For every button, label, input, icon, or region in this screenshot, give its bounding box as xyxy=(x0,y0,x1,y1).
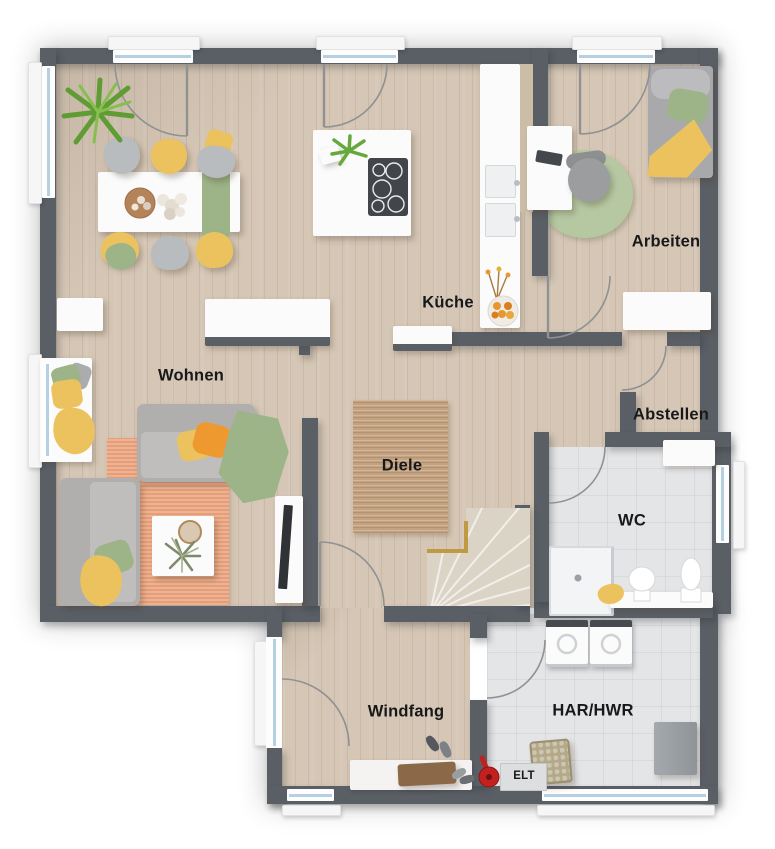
room-label-diele: Diele xyxy=(382,457,422,476)
wall-windfang-har-lower xyxy=(470,700,487,786)
office-sideboard xyxy=(623,292,711,330)
room-label-wc: WC xyxy=(618,512,646,531)
shower xyxy=(549,546,614,616)
halfwall-sideboard-1 xyxy=(205,299,330,346)
wall-abstellen-top-right xyxy=(667,332,700,346)
dining-sideboard xyxy=(57,298,103,331)
sill-top-2 xyxy=(316,36,405,50)
floor-plan: Wohnen Küche Arbeiten Abstellen Diele WC… xyxy=(0,0,775,849)
sill-top-1 xyxy=(108,36,200,50)
window-windfang-bottom xyxy=(287,789,334,801)
window-terrace-office xyxy=(577,50,655,63)
window-har-bottom xyxy=(542,789,708,801)
dryer xyxy=(590,620,632,667)
window-left-dining xyxy=(42,66,55,198)
shoe-bench xyxy=(397,761,456,786)
window-terrace-kitchen xyxy=(321,50,398,63)
kitchen-sink-2 xyxy=(485,203,516,237)
wall-wc-left xyxy=(534,432,549,602)
room-label-kueche: Küche xyxy=(422,294,473,313)
room-label-abstellen: Abstellen xyxy=(633,406,709,425)
halfwall-sideboard-2 xyxy=(393,326,452,351)
sill-bottom-2 xyxy=(537,805,715,816)
office-chair xyxy=(568,158,610,202)
sill-wc-right xyxy=(733,461,745,549)
water-heater xyxy=(654,722,697,775)
table-runner xyxy=(202,172,230,236)
wall-diele-top xyxy=(450,332,622,346)
dining-chair-5 xyxy=(151,236,189,270)
bay-pillow-yellow xyxy=(50,378,84,410)
wall-under-stairs xyxy=(384,606,530,622)
wc-vanity xyxy=(610,592,713,608)
desk xyxy=(527,126,572,210)
room-label-arbeiten: Arbeiten xyxy=(632,233,701,252)
coffee-table xyxy=(152,516,214,576)
room-label-elt: ELT xyxy=(513,770,534,782)
sill-bottom-1 xyxy=(282,805,341,816)
front-door xyxy=(266,637,282,748)
wall-right-lower xyxy=(700,614,718,804)
room-label-windfang: Windfang xyxy=(368,703,445,722)
wall-wohnen-diele xyxy=(302,418,318,606)
room-label-har: HAR/HWR xyxy=(552,702,633,721)
wall-stairs-right xyxy=(515,505,530,606)
room-label-wohnen: Wohnen xyxy=(158,367,224,386)
sill-left-1 xyxy=(28,62,42,204)
wc-cabinet xyxy=(663,440,715,466)
wall-entry-left-upper xyxy=(267,606,282,637)
washer xyxy=(546,620,588,667)
window-terrace-dining xyxy=(113,50,193,63)
window-wc xyxy=(716,465,729,543)
cooktop xyxy=(368,158,408,216)
kitchen-sink-1 xyxy=(485,165,516,198)
wall-windfang-har-upper xyxy=(470,614,487,638)
sill-top-3 xyxy=(572,36,662,50)
